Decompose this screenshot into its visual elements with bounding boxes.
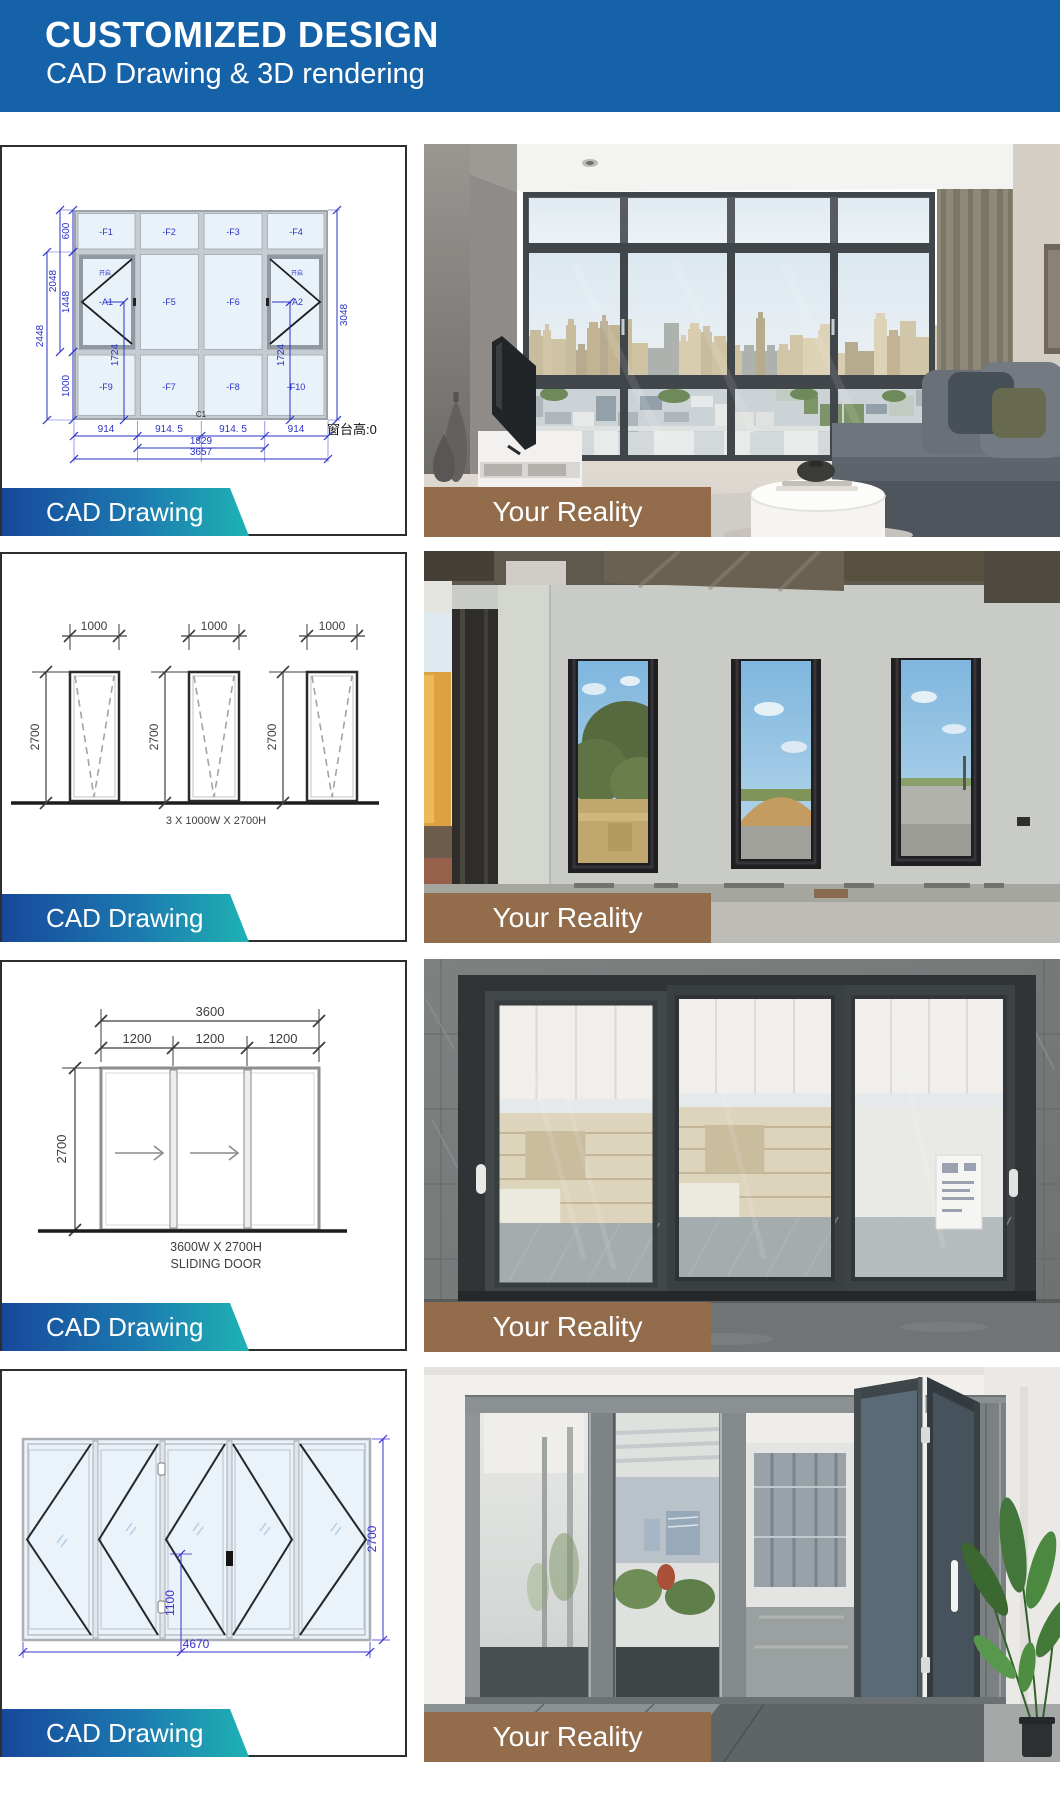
svg-text:1000: 1000 (319, 619, 346, 633)
svg-text:-F3: -F3 (226, 227, 240, 237)
svg-text:1200: 1200 (123, 1031, 152, 1046)
svg-text:开启: 开启 (99, 269, 111, 277)
svg-text:-F6: -F6 (226, 297, 240, 307)
svg-text:1000: 1000 (61, 374, 72, 397)
svg-text:2448: 2448 (35, 324, 46, 347)
svg-text:SLIDING DOOR: SLIDING DOOR (171, 1257, 262, 1271)
svg-text:1100: 1100 (163, 1590, 177, 1616)
svg-text:1200: 1200 (269, 1031, 298, 1046)
svg-text:1448: 1448 (61, 290, 72, 313)
svg-text:2700: 2700 (54, 1135, 69, 1164)
svg-text:3600W X 2700H: 3600W X 2700H (170, 1240, 262, 1254)
svg-text:914. 5: 914. 5 (219, 424, 247, 435)
svg-text:2700: 2700 (365, 1525, 379, 1552)
svg-text:窗台高:0: 窗台高:0 (327, 422, 377, 437)
svg-text:-F5: -F5 (162, 297, 176, 307)
svg-text:2700: 2700 (147, 723, 161, 750)
svg-text:3600: 3600 (196, 1004, 225, 1019)
svg-text:1200: 1200 (196, 1031, 225, 1046)
svg-text:开启: 开启 (291, 269, 303, 277)
svg-text:-A2: -A2 (289, 297, 303, 307)
svg-text:1724: 1724 (110, 343, 121, 366)
svg-text:-F1: -F1 (99, 227, 113, 237)
svg-text:914. 5: 914. 5 (155, 424, 183, 435)
svg-text:C1: C1 (196, 410, 207, 419)
svg-text:3 X 1000W X 2700H: 3 X 1000W X 2700H (166, 815, 266, 827)
svg-text:914: 914 (98, 424, 115, 435)
svg-text:-F7: -F7 (162, 382, 176, 392)
svg-text:1000: 1000 (81, 619, 108, 633)
svg-text:3048: 3048 (339, 303, 350, 326)
svg-text:-F9: -F9 (99, 382, 113, 392)
svg-text:1724: 1724 (276, 343, 287, 366)
svg-text:914: 914 (288, 424, 305, 435)
svg-text:2700: 2700 (265, 723, 279, 750)
svg-text:4670: 4670 (183, 1637, 210, 1651)
svg-text:1000: 1000 (201, 619, 228, 633)
svg-text:-F8: -F8 (226, 382, 240, 392)
svg-text:-F2: -F2 (162, 227, 176, 237)
svg-text:600: 600 (61, 222, 72, 239)
svg-text:-F4: -F4 (289, 227, 303, 237)
svg-text:2700: 2700 (28, 723, 42, 750)
svg-text:2048: 2048 (48, 269, 59, 292)
